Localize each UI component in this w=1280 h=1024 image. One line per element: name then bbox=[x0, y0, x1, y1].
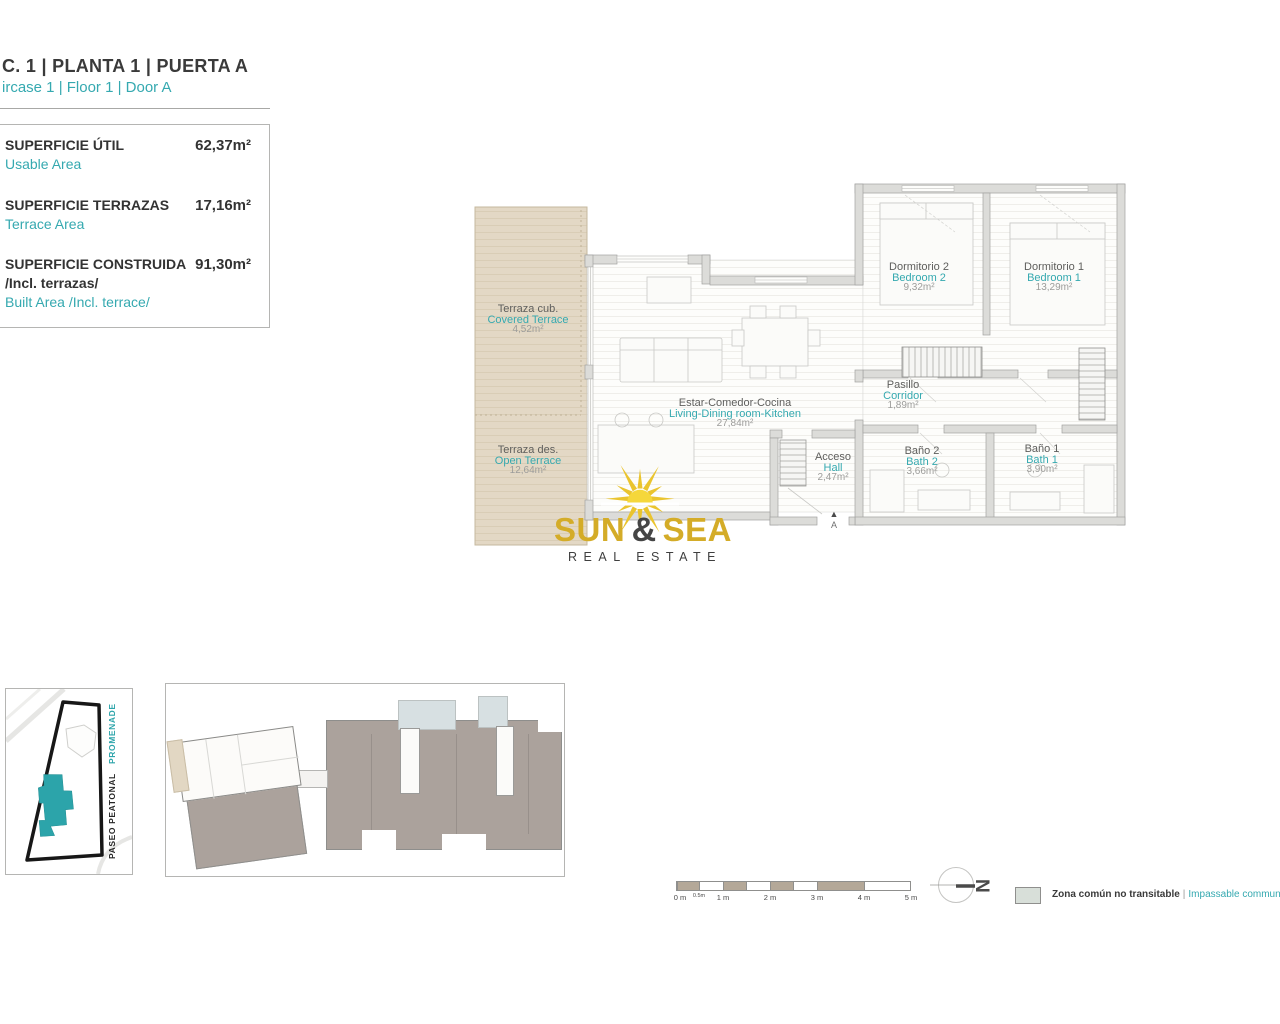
overview-communal-zone bbox=[398, 700, 456, 730]
legend-swatch-communal bbox=[1015, 887, 1041, 904]
entrance-arrow-icon: ▲ bbox=[820, 509, 848, 519]
north-label: N bbox=[971, 879, 992, 893]
logo-ampersand: & bbox=[630, 511, 659, 549]
entrance-marker: ▲ A bbox=[820, 509, 848, 530]
scale-bar bbox=[676, 881, 911, 891]
scale-segment bbox=[723, 882, 747, 890]
overview-unit-divider bbox=[528, 734, 529, 834]
scale-label: 5 m bbox=[905, 893, 918, 902]
site-location-map: PROMENADE PASEO PEATONAL bbox=[5, 688, 133, 875]
scale-bar-labels: 0 m 0.5m 1 m 2 m 3 m 4 m 5 m bbox=[676, 893, 926, 903]
scale-segment bbox=[817, 882, 865, 890]
legend-label-en: Impassable communal area bbox=[1188, 889, 1280, 900]
floor-overview-plan bbox=[165, 683, 565, 877]
room-label-bath1: Baño 1 Bath 1 3,90m² bbox=[994, 444, 1090, 476]
room-label-bedroom2: Dormitorio 2 Bedroom 2 9,32m² bbox=[860, 262, 978, 294]
logo-word-sun: SUN bbox=[554, 511, 625, 548]
overview-unit-divider bbox=[371, 734, 372, 834]
overview-notch bbox=[442, 834, 486, 850]
logo-word-sea: SEA bbox=[663, 511, 732, 548]
room-label-hall: Acceso Hall 2,47m² bbox=[785, 452, 881, 484]
room-label-bath2: Baño 2 Bath 2 3,66m² bbox=[874, 446, 970, 478]
paseo-peatonal-label: PASEO PEATONAL bbox=[107, 773, 117, 859]
logo-wordmark: SUN & SEA bbox=[545, 511, 741, 550]
overview-stair-core bbox=[496, 726, 514, 796]
summary-label-en: Usable Area bbox=[5, 156, 251, 172]
overview-unit-room-line bbox=[241, 757, 299, 766]
summary-value: 17,16m² bbox=[195, 197, 251, 214]
scale-label: 1 m bbox=[717, 893, 730, 902]
summary-row-built: SUPERFICIE CONSTRUIDA 91,30m² /Incl. ter… bbox=[5, 256, 251, 310]
scale-label: 0 m bbox=[674, 893, 687, 902]
overview-stair-core bbox=[400, 728, 420, 794]
surface-summary-box: SUPERFICIE ÚTIL 62,37m² Usable Area SUPE… bbox=[0, 124, 270, 328]
summary-row-terraces: SUPERFICIE TERRAZAS 17,16m² Terrace Area bbox=[5, 197, 251, 232]
room-label-corridor: Pasillo Corridor 1,89m² bbox=[855, 380, 951, 412]
summary-value: 91,30m² bbox=[195, 256, 251, 273]
overview-unit-divider bbox=[456, 734, 457, 834]
plot-outline bbox=[27, 702, 102, 860]
overview-communal-zone bbox=[478, 696, 508, 728]
summary-label-es-extra: /Incl. terrazas/ bbox=[5, 275, 251, 291]
summary-value: 62,37m² bbox=[195, 137, 251, 154]
legend-text: Zona común no transitable|Impassable com… bbox=[1052, 889, 1280, 900]
overview-notch bbox=[538, 720, 562, 732]
promenade-label: PROMENADE bbox=[107, 701, 117, 767]
header-divider bbox=[0, 108, 270, 109]
page-title: C. 1 | PLANTA 1 | PUERTA A bbox=[2, 56, 248, 77]
logo-tagline: REAL ESTATE bbox=[545, 550, 741, 564]
room-label-living: Estar-Comedor-Cocina Living-Dining room-… bbox=[650, 398, 820, 430]
page-subtitle: ircase 1 | Floor 1 | Door A bbox=[2, 79, 172, 96]
scale-label: 0.5m bbox=[693, 893, 705, 899]
legend-label-es: Zona común no transitable bbox=[1052, 889, 1180, 900]
terrace-area bbox=[475, 207, 587, 545]
summary-label-en: Built Area /Incl. terrace/ bbox=[5, 294, 251, 310]
summary-label-en: Terrace Area bbox=[5, 216, 251, 232]
scale-label: 3 m bbox=[811, 893, 824, 902]
scale-segment bbox=[677, 882, 700, 890]
room-label-covered-terrace: Terraza cub. Covered Terrace 4,52m² bbox=[470, 304, 586, 336]
scale-label: 2 m bbox=[764, 893, 777, 902]
overview-unit-room-line bbox=[205, 739, 214, 799]
room-label-open-terrace: Terraza des. Open Terrace 12,64m² bbox=[470, 445, 586, 477]
floorplan-page: { "header": { "title": "C. 1 | PLANTA 1 … bbox=[0, 0, 1280, 1024]
room-label-bedroom1: Dormitorio 1 Bedroom 1 13,29m² bbox=[995, 262, 1113, 294]
overview-notch bbox=[362, 830, 396, 850]
scale-segment bbox=[770, 882, 794, 890]
north-compass: N bbox=[928, 862, 1000, 910]
entrance-label: A bbox=[820, 520, 848, 530]
summary-row-usable: SUPERFICIE ÚTIL 62,37m² Usable Area bbox=[5, 137, 251, 172]
scale-label: 4 m bbox=[858, 893, 871, 902]
